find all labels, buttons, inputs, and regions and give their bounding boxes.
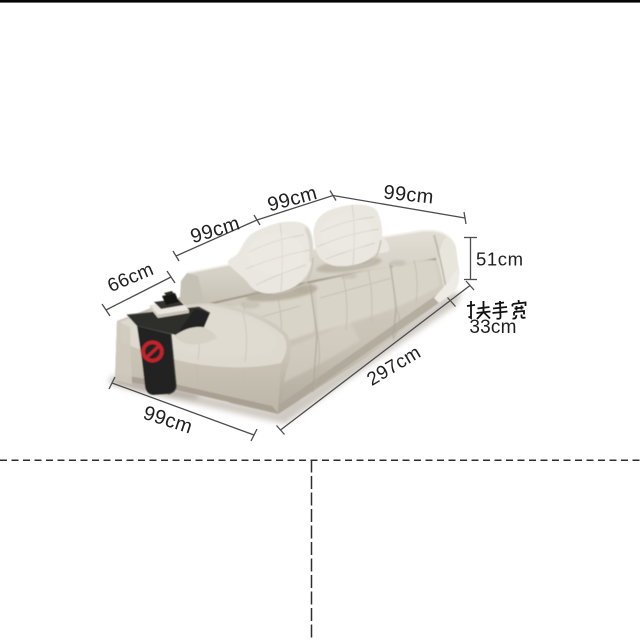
svg-text:33cm: 33cm: [469, 317, 516, 338]
svg-text:51cm: 51cm: [476, 249, 524, 270]
